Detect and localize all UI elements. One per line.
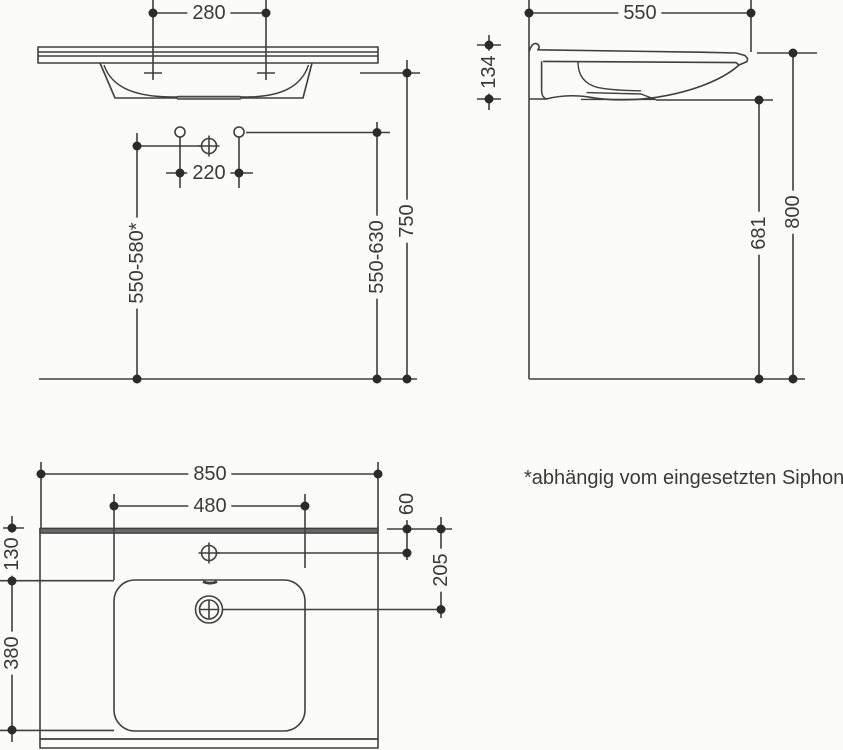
tap-hole-icon xyxy=(234,127,244,137)
dim-label-800: 800 xyxy=(782,190,804,233)
front-edge-strip xyxy=(40,739,378,748)
dim-label-850: 850 xyxy=(188,463,231,485)
overflow-notch xyxy=(203,582,217,584)
dim-label-480: 480 xyxy=(188,495,231,517)
fixing-point-icon xyxy=(199,543,220,564)
dimension-dots xyxy=(485,9,798,384)
dim-label-280: 280 xyxy=(187,2,230,24)
washbasin-dimension-drawing: { "document": { "type": "technical-dimen… xyxy=(0,0,843,750)
dim-label-550: 550 xyxy=(618,2,661,24)
dim-label-205: 205 xyxy=(430,548,452,591)
dimension-dots xyxy=(133,9,412,384)
dim-label-750: 750 xyxy=(396,199,418,242)
back-edge-band xyxy=(40,529,378,534)
dim-label-380: 380 xyxy=(1,631,23,674)
drain-outlet-icon xyxy=(177,96,241,99)
siphon-footnote: *abhängig vom eingesetzten Siphon xyxy=(524,467,843,489)
tap-hole-icon xyxy=(175,127,185,137)
bowl-inner-wall xyxy=(578,62,641,91)
dim-label-550-630: 550-630 xyxy=(366,215,388,298)
wall-apron xyxy=(529,61,547,99)
side-view xyxy=(477,0,817,384)
dim-label-681: 681 xyxy=(748,211,770,254)
fixing-point-icon xyxy=(199,136,220,157)
front-view xyxy=(38,0,420,384)
dim-label-550-580: 550-580* xyxy=(126,217,148,308)
drain-icon xyxy=(196,596,223,623)
drawing-canvas xyxy=(0,0,843,750)
dim-label-130: 130 xyxy=(1,532,23,575)
basin-slab-front xyxy=(38,47,378,63)
basin-profile-top xyxy=(529,43,748,65)
dim-label-220: 220 xyxy=(187,162,230,184)
dim-label-134: 134 xyxy=(478,50,500,93)
dim-label-60: 60 xyxy=(396,488,418,520)
